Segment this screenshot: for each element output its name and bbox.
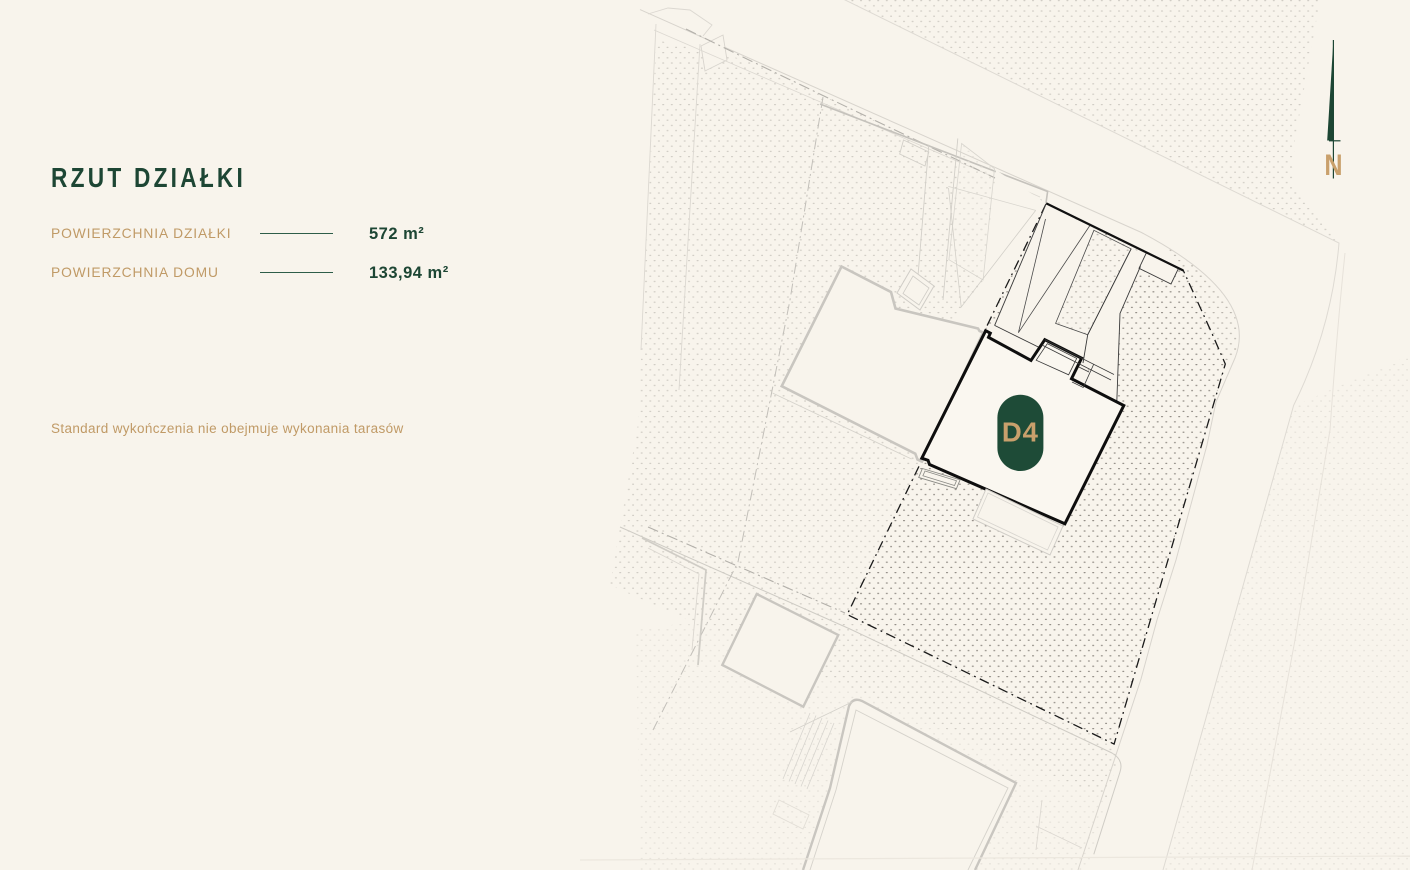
svg-text:N: N [1324, 148, 1342, 182]
svg-text:D4: D4 [1002, 417, 1039, 448]
